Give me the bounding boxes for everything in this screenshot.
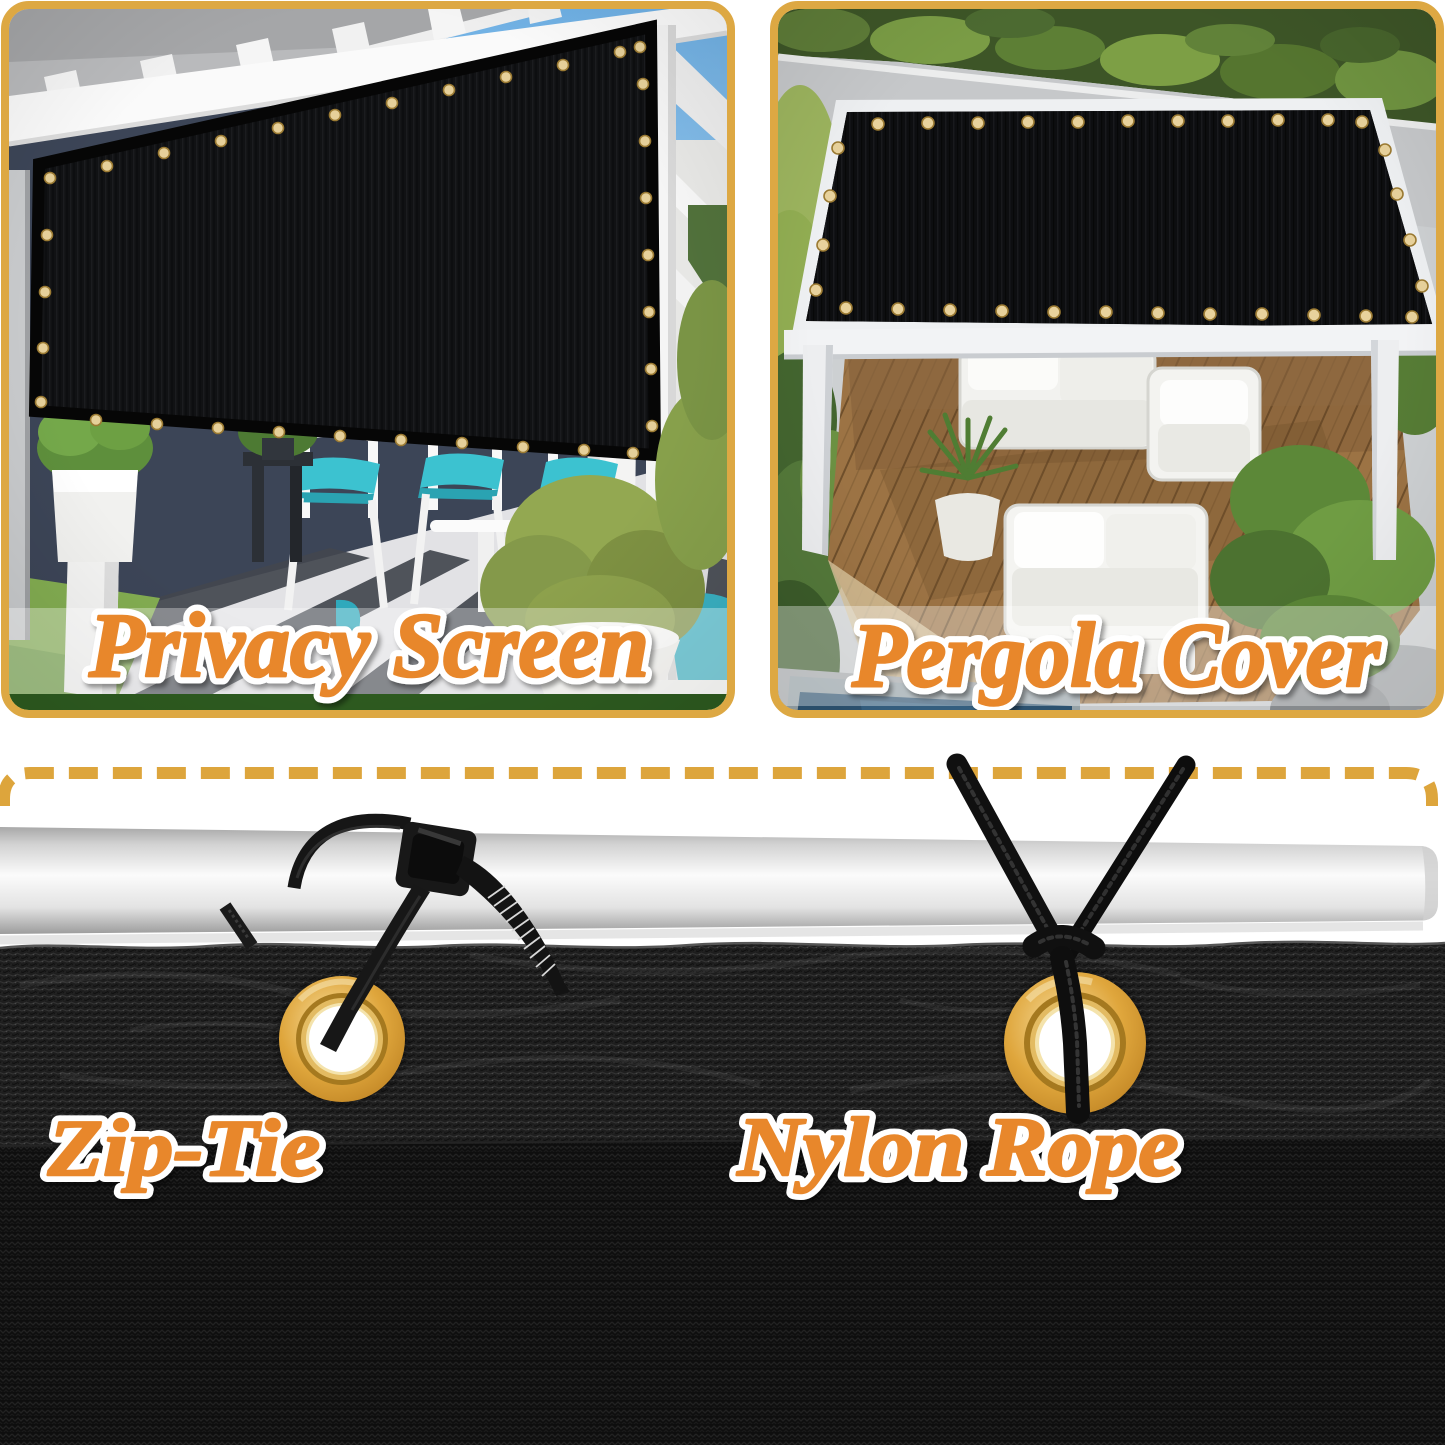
svg-text:Privacy Screen: Privacy Screen xyxy=(88,594,649,696)
svg-text:Nylon Rope: Nylon Rope xyxy=(736,1101,1178,1194)
svg-text:Pergola Cover: Pergola Cover xyxy=(851,604,1381,706)
svg-text:Zip-Tie: Zip-Tie xyxy=(47,1105,320,1193)
